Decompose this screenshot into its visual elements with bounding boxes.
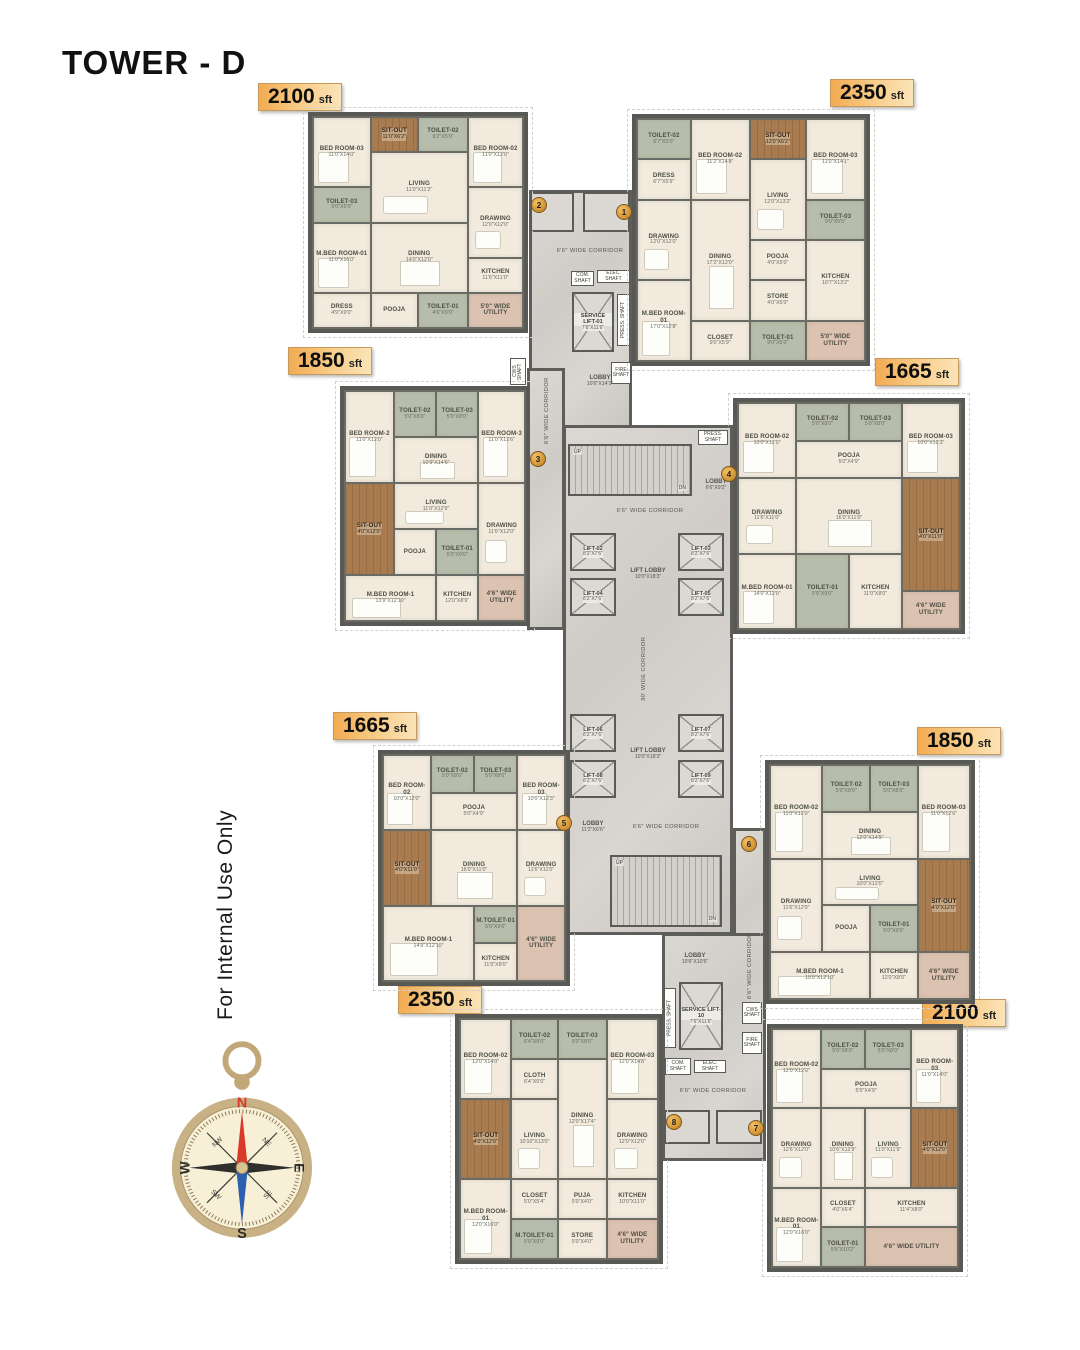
fire-shaft: FIRE SHAFT (742, 1032, 762, 1054)
service-lift-01: SERVICE LIFT-017'6"X11'6" (572, 292, 614, 352)
room: BED ROOM-0210'0"X12'0" (384, 756, 430, 829)
room: TOILET-025'0"X8'0" (823, 766, 869, 811)
room: KITCHEN12'0"X8'0" (871, 953, 917, 998)
lift-lobby-upper: LIFT LOBBY10'0"X18'3" (618, 558, 678, 590)
room: LIVING11'0"X11'2" (372, 153, 467, 221)
lift-lobby-lower: LIFT LOBBY10'0"X18'3" (618, 738, 678, 770)
lift-07: LIFT-078'2"X7'6" (678, 714, 724, 752)
room: M.BED ROOM-114'9"X12'10" (384, 907, 473, 980)
sit-out: SIT-OUT4'0"X12'0" (912, 1109, 957, 1186)
room: LIVING11'0"X12'9" (395, 484, 478, 528)
entry-marker: 7 (748, 1120, 764, 1136)
room: BED ROOM-0212'0"X12'0" (773, 1030, 820, 1107)
room: BED ROOM-0311'0"X12'6" (919, 766, 969, 858)
service-lift-10: SERVICE LIFT-107'6"X11'6" (679, 982, 723, 1050)
room: BED ROOM-0212'0"X14'0" (461, 1020, 510, 1098)
sit-out: SIT-OUT11'0"X6'2" (372, 118, 417, 151)
corridor-label-vertical: 6'6" WIDE CORRIDOR (744, 935, 756, 997)
area-label-1665-lml: 1665sft (333, 712, 417, 740)
unit-2100-bottom-right: BED ROOM-0212'0"X12'0" TOILET-025'0"X8'0… (767, 1024, 963, 1272)
room: DRAWING12'6"X12'0" (773, 1109, 820, 1186)
room: TOILET-014'6"X9'0" (419, 294, 467, 327)
com-shaft: COM. SHAFT (665, 1058, 691, 1075)
area-label-1665-mr: 1665sft (875, 358, 959, 386)
sit-out: SIT-OUT4'0"X12'0" (461, 1100, 510, 1178)
room: BED ROOM-0211'0"X12'0" (771, 766, 821, 858)
room: 4'6" WIDE UTILITY (479, 576, 524, 620)
room: M.BED ROOM-113'9"X12'10" (346, 576, 435, 620)
press-shaft: PRESS. SHAFT (698, 430, 728, 445)
lobby-low: LOBBY11'2"X6'6" (570, 816, 616, 838)
room: STORE5'0"X4'0" (559, 1220, 606, 1258)
room: POOJA5'0"X4'9" (822, 1070, 911, 1108)
sit-out: SIT-OUT12'0"X6'2" (751, 120, 805, 158)
press-shaft: PRESS. SHAFT (664, 988, 676, 1048)
room: POOJA (395, 530, 435, 574)
room: TOILET-025'0"X8'0" (822, 1030, 864, 1068)
room: BED ROOM-0311'0"X14'0" (314, 118, 370, 186)
room: BED ROOM-0311'0"X14'0" (912, 1030, 957, 1107)
corridor-label: 6'6" WIDE CORRIDOR (668, 1086, 758, 1096)
entry-marker: 3 (530, 451, 546, 467)
sit-out: SIT-OUT4'0"X12'0" (919, 860, 969, 952)
room: TOILET-015'0"X9'0" (437, 530, 477, 574)
area-label-2350-tr: 2350sft (830, 79, 914, 107)
page-title: TOWER - D (62, 44, 246, 82)
room: M.BED ROOM-0112'0"X16'0" (773, 1189, 820, 1266)
room: BED ROOM-0210'0"X12'0" (739, 404, 795, 477)
compass-n: N (237, 1095, 248, 1111)
corridor-label-vertical: 6'6" WIDE CORRIDOR (541, 382, 553, 440)
entry-marker: 8 (666, 1114, 682, 1130)
lift-04: LIFT-048'2"X7'6" (570, 578, 616, 616)
room: 4'6" WIDE UTILITY (903, 592, 959, 628)
entry-marker: 2 (531, 197, 547, 213)
unit-2100-top-left: BED ROOM-0311'0"X14'0" SIT-OUT11'0"X6'2"… (308, 112, 528, 333)
room: TOILET-035'0"X8'0" (437, 392, 477, 436)
room: M.BED ROOM-0111'0"X16'0" (314, 224, 370, 292)
compass-hub (236, 1162, 248, 1174)
lift-06: LIFT-068'2"X7'6" (570, 714, 616, 752)
entry-marker: 1 (616, 204, 632, 220)
unit-2350-bottom-left: BED ROOM-0212'0"X14'0" TOILET-026'4"X8'0… (455, 1014, 663, 1264)
staircase-upper: UPDN (568, 444, 692, 496)
entry-marker: 6 (741, 836, 757, 852)
room: DRAWING11'6"X11'0" (518, 831, 564, 904)
compass-knob (234, 1074, 250, 1090)
room: 4'6" WIDE UTILITY (866, 1228, 957, 1266)
room: TOILET-015'0"X9'0" (871, 906, 917, 951)
room: TOILET-039'0"X5'5" (807, 201, 864, 239)
room: DINING12'0"X14'9" (823, 813, 916, 858)
room: DRAWING12'0"X12'0" (469, 188, 522, 256)
room: CLOSET4'0"X6'4" (822, 1189, 864, 1227)
room: TOILET-025'0"X8'0" (432, 756, 473, 792)
room: TOILET-025'0"X8'0" (797, 404, 848, 440)
room: KITCHEN10'7"X13'2" (807, 241, 864, 320)
watermark: For Internal Use Only (214, 788, 238, 1020)
room: BED ROOM-0312'0"X14'8" (608, 1020, 657, 1098)
room: POOJA (372, 294, 417, 327)
room: TOILET-026'7"X5'0" (638, 120, 690, 158)
compass: N S W E NW NE SW SE (168, 1030, 314, 1252)
room: TOILET-035'0"X8'0" (475, 756, 516, 792)
lift-02: LIFT-028'2"X7'6" (570, 533, 616, 571)
area-label-1850-lmr: 1850sft (917, 727, 1001, 755)
unit-1665-lower-left: BED ROOM-0210'0"X12'0" TOILET-025'0"X8'0… (378, 750, 570, 986)
floor-plan-sheet: TOWER - D For Internal Use Only 2100sft … (0, 0, 1080, 1350)
lift-05: LIFT-058'2"X7'6" (678, 578, 724, 616)
room: 5'0" WIDE UTILITY (469, 294, 522, 327)
lift-08: LIFT-088'2"X7'6" (570, 760, 616, 798)
room: DINING10'6"X12'9" (822, 1109, 864, 1186)
room: KITCHEN11'0"X8'0" (475, 944, 516, 980)
room: DINING10'9"X14'6" (395, 438, 478, 482)
room: DINING16'0"X11'0" (797, 479, 901, 552)
room: LIVING11'0"X11'9" (866, 1109, 911, 1186)
room: TOILET-035'0"X8'0" (866, 1030, 911, 1068)
room: TOILET-015'6"X10'2" (822, 1228, 864, 1266)
room: BED ROOM-0310'0"X12'3" (903, 404, 959, 477)
room: PUJA5'0"X4'0" (559, 1180, 606, 1218)
entry-marker: 5 (556, 815, 572, 831)
room: TOILET-035'0"X8'0" (559, 1020, 606, 1058)
room: TOILET-019'0"X5'0" (751, 322, 805, 360)
area-label-1850-ml: 1850sft (288, 347, 372, 375)
room: DRESS4'9"X9'0" (314, 294, 370, 327)
sit-out: SIT-OUT4'0"X11'0" (384, 831, 430, 904)
room: DRESS6'7"X5'9" (638, 160, 690, 198)
press-shaft: PRESS. SHAFT (617, 294, 630, 346)
lift-09: LIFT-098'2"X7'6" (678, 760, 724, 798)
room: LIVING10'10"X13'0" (512, 1100, 557, 1178)
room: POOJA (823, 906, 869, 951)
room: TOILET-026'4"X8'0" (512, 1020, 557, 1058)
room: M.TOILET-015'0"X9'0" (512, 1220, 557, 1258)
area-label-2350-bl: 2350sft (398, 986, 482, 1014)
room: DINING16'0"X11'0" (432, 831, 517, 904)
cws-shaft: CWS SHAFT (510, 358, 526, 385)
corridor-label: 6'6" WIDE CORRIDOR (618, 822, 714, 832)
compass-e: E (292, 1163, 307, 1172)
room: TOILET-035'0"X8'0" (850, 404, 901, 440)
staircase-lower: UPDN (610, 855, 722, 927)
area-label-2100-tl: 2100sft (258, 83, 342, 111)
unit-1850-lower-right: BED ROOM-0211'0"X12'0" TOILET-025'0"X8'0… (765, 760, 975, 1004)
room: CLOSET5'0"X5'4" (512, 1180, 557, 1218)
room: DRAWING11'6"X11'0" (739, 479, 795, 552)
compass-w: W (177, 1161, 192, 1174)
room: TOILET-035'0"X8'0" (871, 766, 917, 811)
compass-ring (225, 1044, 258, 1077)
sit-out: SIT-OUT4'0"X12'0" (346, 484, 393, 574)
room: CLOSET9'0"X5'9" (692, 322, 749, 360)
lobby-bottom: LOBBY10'6"X10'5" (668, 948, 722, 970)
room: CLOTH6'4"X5'0" (512, 1060, 557, 1098)
corridor-label: 6'6" WIDE CORRIDOR (600, 506, 700, 516)
room: BED ROOM-0311'0"X14'1" (807, 120, 864, 199)
room: DINING14'0"X12'0" (372, 224, 467, 292)
room: KITCHEN11'4"X8'0" (866, 1189, 957, 1227)
room: TOILET-025'0"X8'0" (395, 392, 435, 436)
elec-shaft: ELEC. SHAFT (694, 1060, 726, 1073)
room: DRAWING11'6"X12'0" (771, 860, 821, 952)
room: M.BED ROOM-0117'0"X12'8" (638, 281, 690, 360)
room: 5'0" WIDE UTILITY (807, 322, 864, 360)
entry-marker: 4 (721, 466, 737, 482)
room: 4'6" WIDE UTILITY (919, 953, 969, 998)
room: DRAWING12'0"X12'0" (638, 201, 690, 280)
unit-2350-top-right: TOILET-026'7"X5'0" BED ROOM-0211'2"X14'8… (632, 114, 870, 366)
room: STORE4'0"X5'0" (751, 281, 805, 319)
corridor-label: 6'6" WIDE CORRIDOR (545, 246, 635, 256)
room: 4'6" WIDE UTILITY (518, 907, 564, 980)
sit-out: SIT-OUT4'0"X11'0" (903, 479, 959, 590)
room: DRAWING12'0"X12'0" (608, 1100, 657, 1178)
room: POOJA5'0"X4'9" (432, 794, 517, 830)
unit-1665-mid-right: BED ROOM-0210'0"X12'0" TOILET-025'0"X8'0… (733, 398, 965, 634)
room: DINING17'2"X12'0" (692, 201, 749, 320)
room-dims: 11'0"X14'0" (328, 153, 355, 159)
lift-03: LIFT-038'2"X7'6" (678, 533, 724, 571)
room: KITCHEN11'6"X11'0" (469, 259, 522, 292)
unit-1850-mid-left: BED ROOM-211'0"X12'0" TOILET-025'0"X8'0"… (340, 386, 530, 626)
corridor-30-label: 30' WIDE CORRIDOR (637, 636, 651, 702)
room: TOILET-029'2"X5'0" (419, 118, 467, 151)
room: TOILET-015'0"X9'0" (797, 555, 848, 628)
room: M.BED ROOM-0114'0"X12'0" (739, 555, 795, 628)
room: LIVING10'0"X12'0" (823, 860, 916, 905)
room: KITCHEN10'0"X11'0" (608, 1180, 657, 1218)
room: DINING12'0"X17'4" (559, 1060, 606, 1178)
room: BED ROOM-0211'2"X14'8" (692, 120, 749, 199)
room: M.BED ROOM-115'0"X12'10" (771, 953, 869, 998)
elec-shaft: ELEC. SHAFT (597, 270, 630, 283)
room: BED ROOM-311'0"X12'6" (479, 392, 524, 482)
room: BED ROOM-0211'0"X12'0" (469, 118, 522, 186)
room: M.BED ROOM-0112'0"X16'0" (461, 1180, 510, 1258)
room: KITCHEN11'0"X8'0" (850, 555, 901, 628)
room: KITCHEN12'0"X8'9" (437, 576, 477, 620)
compass-s: S (237, 1226, 247, 1242)
room: DRAWING11'6"X12'0" (479, 484, 524, 574)
room: POOJA4'0"X5'0" (751, 241, 805, 279)
room: LIVING12'0"X13'2" (751, 160, 805, 239)
room: TOILET-039'0"X5'0" (314, 188, 370, 221)
room: 4'6" WIDE UTILITY (608, 1220, 657, 1258)
room: BED ROOM-211'0"X12'0" (346, 392, 393, 482)
com-shaft: COM. SHAFT (571, 271, 594, 286)
room: M.TOILET-015'0"X9'0" (475, 907, 516, 943)
lobby-top: LOBBY10'6"X14'1" (575, 370, 625, 392)
cws-shaft: CWS SHAFT (742, 1002, 762, 1024)
room: POOJA5'0"X4'9" (797, 442, 901, 478)
